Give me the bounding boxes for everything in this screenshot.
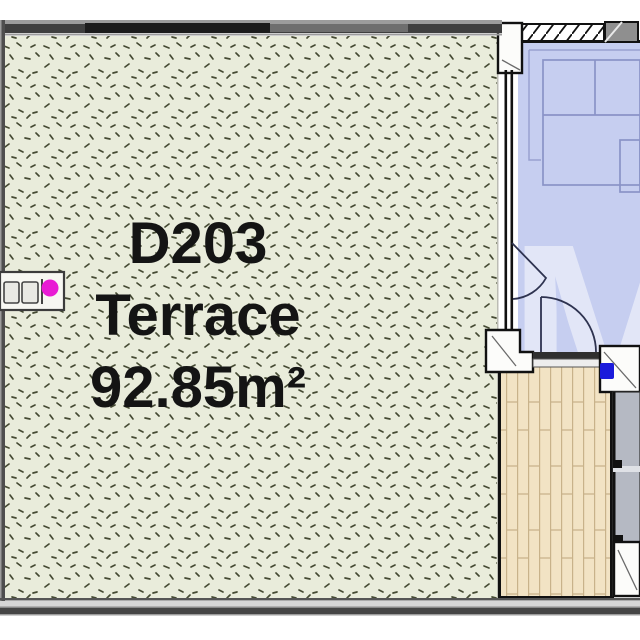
concrete-block	[605, 22, 638, 42]
sliding-door	[533, 352, 602, 367]
hatched-wall	[522, 24, 604, 41]
room-name-label: Terrace	[95, 283, 300, 348]
window-wall	[505, 70, 514, 358]
ac-unit-icon	[0, 272, 64, 310]
top-railing	[0, 20, 502, 36]
glass-railing	[613, 392, 640, 596]
blue-marker	[600, 363, 614, 379]
left-railing	[0, 20, 5, 604]
bottom-railing	[0, 598, 640, 616]
floor-plan: M	[0, 0, 640, 640]
unit-id-label: D203	[129, 211, 268, 276]
floor-plan-canvas: M	[0, 0, 640, 640]
magenta-marker	[42, 280, 59, 297]
room-area-label: 92.85m²	[90, 355, 306, 420]
deck-area	[498, 366, 614, 599]
bottom-right-pillar	[614, 542, 640, 596]
